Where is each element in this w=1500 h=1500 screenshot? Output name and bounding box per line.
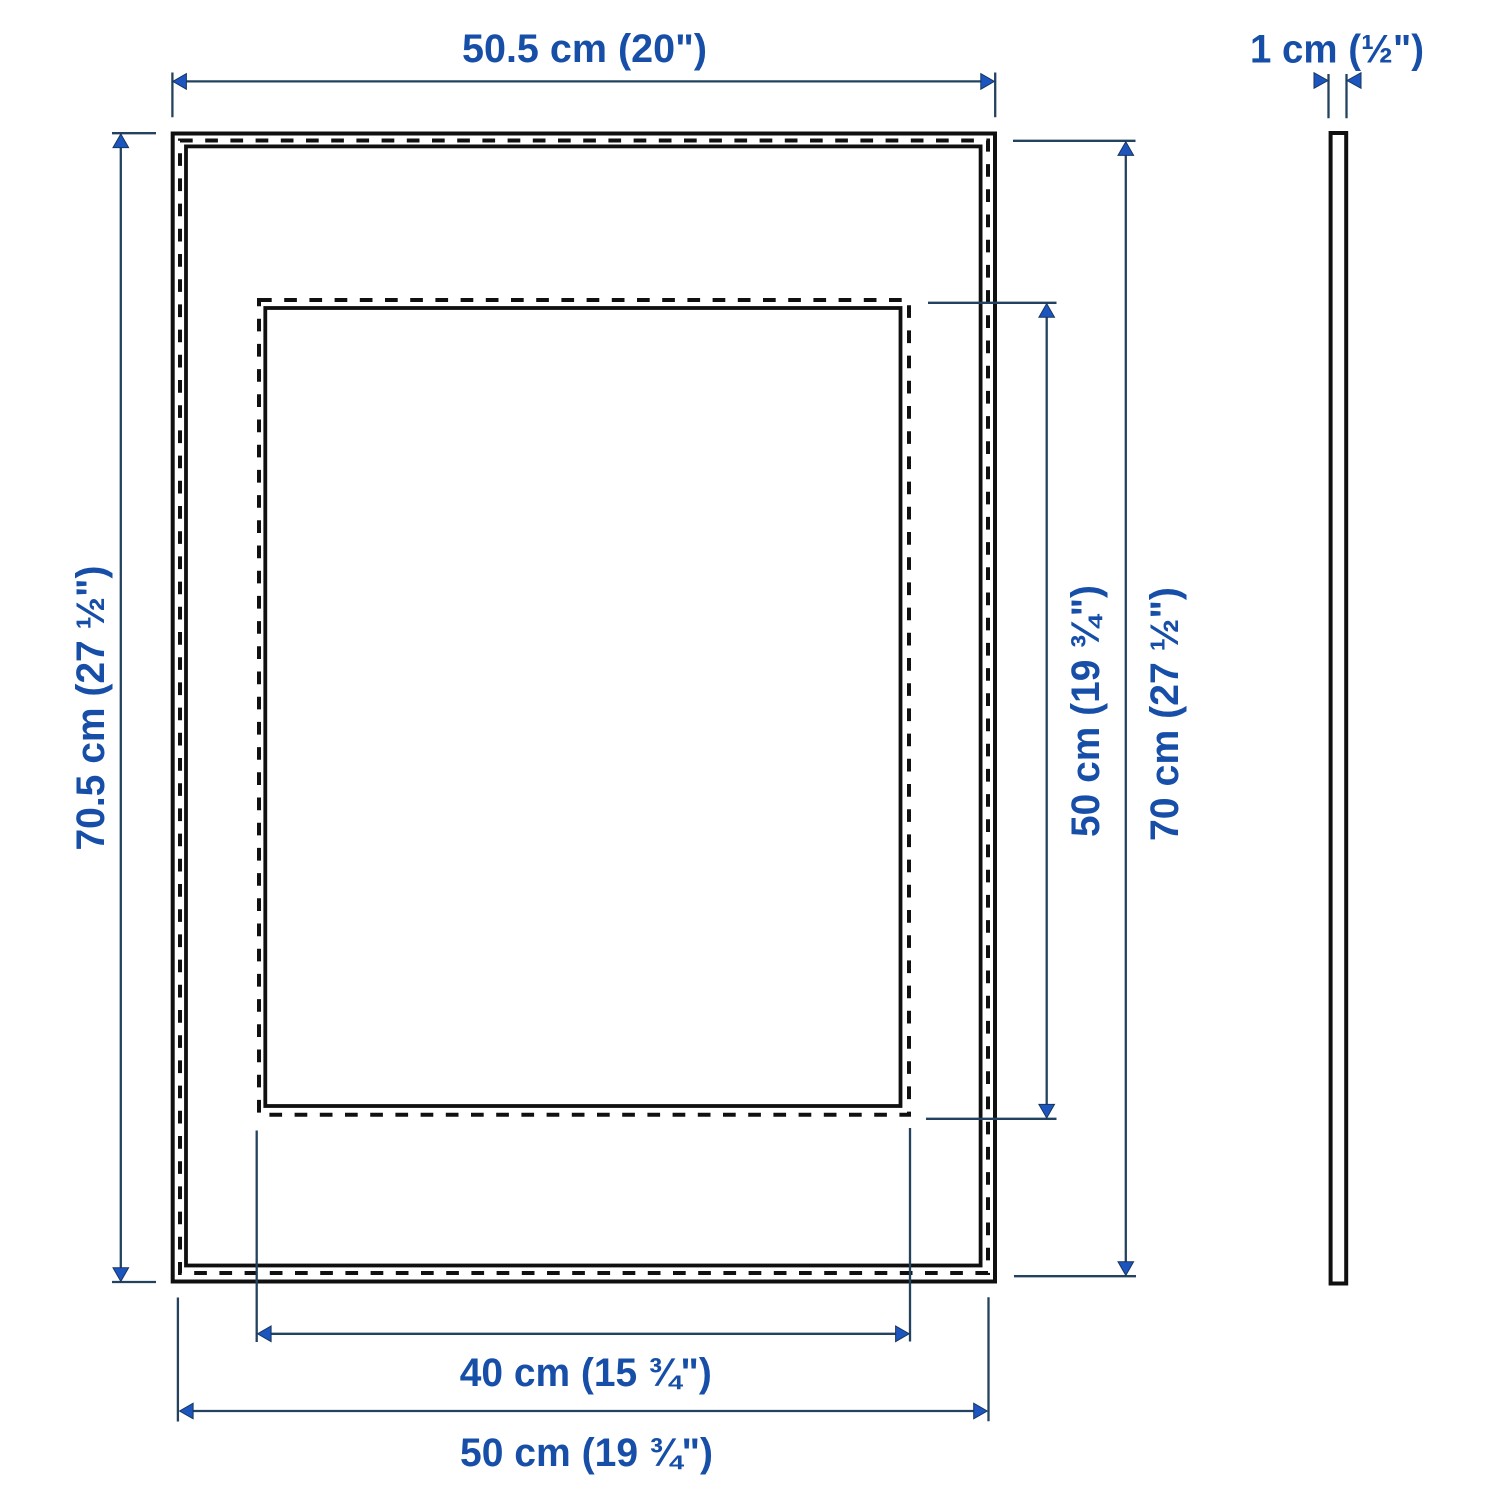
svg-text:50 cm (19 ¾"): 50 cm (19 ¾") [460, 1431, 713, 1475]
svg-text:70.5 cm (27 ½"): 70.5 cm (27 ½") [69, 566, 113, 851]
svg-text:1 cm (½"): 1 cm (½") [1250, 28, 1424, 72]
svg-text:50 cm (19 ¾"): 50 cm (19 ¾") [1064, 585, 1108, 837]
svg-text:50.5 cm (20"): 50.5 cm (20") [462, 27, 707, 71]
svg-text:40 cm (15 ¾"): 40 cm (15 ¾") [460, 1351, 712, 1395]
svg-text:70 cm (27 ½"): 70 cm (27 ½") [1143, 587, 1187, 841]
